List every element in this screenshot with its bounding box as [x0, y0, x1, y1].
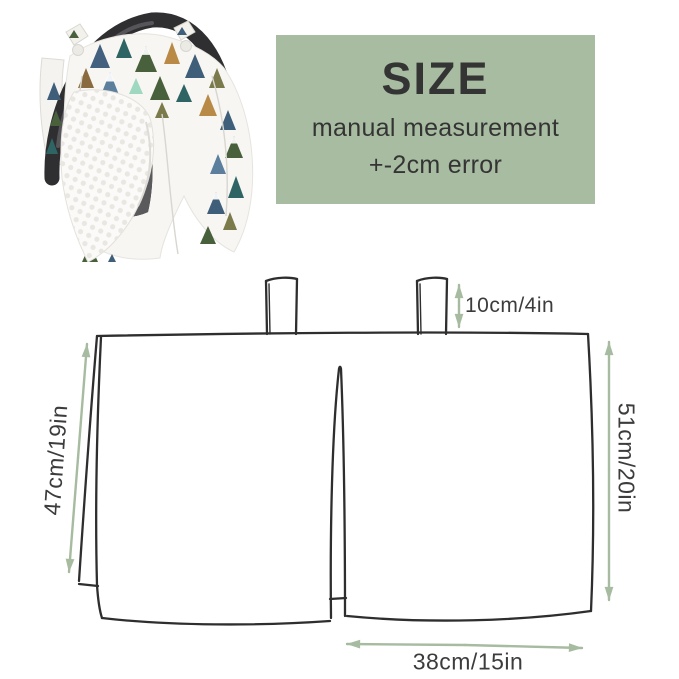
right-tab-sketch: [420, 284, 421, 334]
left-tab-sketch: [269, 284, 270, 334]
left-dimension-arrow: [78, 344, 87, 458]
fabric-top-edge: [97, 333, 588, 336]
fabric-right-edge: [588, 334, 593, 611]
tab-height-label: 10cm/4in: [465, 294, 554, 318]
center-slit-left: [331, 369, 339, 618]
left-tab-right: [296, 279, 297, 334]
dimension-arrows: [69, 285, 609, 648]
center-slit-right: [341, 369, 345, 616]
right-tab-top: [417, 278, 447, 281]
center-slit-top: [339, 367, 341, 369]
bottom-width-label: 38cm/15in: [413, 649, 524, 676]
left-dimension-arrow: [69, 458, 78, 572]
left-tab-top: [266, 278, 297, 281]
product-size-infographic: SIZE manual measurement +-2cm error: [0, 0, 679, 679]
fabric-bottom-right: [347, 611, 591, 621]
fabric-left-edge-inner: [96, 337, 102, 618]
left-tab-left: [266, 281, 267, 334]
bottom-dimension-arrow: [347, 644, 465, 645]
fabric-outline: [79, 278, 593, 625]
measurement-diagram: [0, 0, 679, 679]
fabric-bottom-left: [102, 618, 330, 624]
right-tab-left: [417, 281, 418, 334]
right-tab-right: [446, 279, 447, 334]
right-height-label: 51cm/20in: [613, 403, 640, 514]
fabric-left-foot: [79, 584, 98, 586]
fabric-left-edge-outer: [79, 336, 97, 581]
center-slit-tick: [330, 598, 346, 599]
